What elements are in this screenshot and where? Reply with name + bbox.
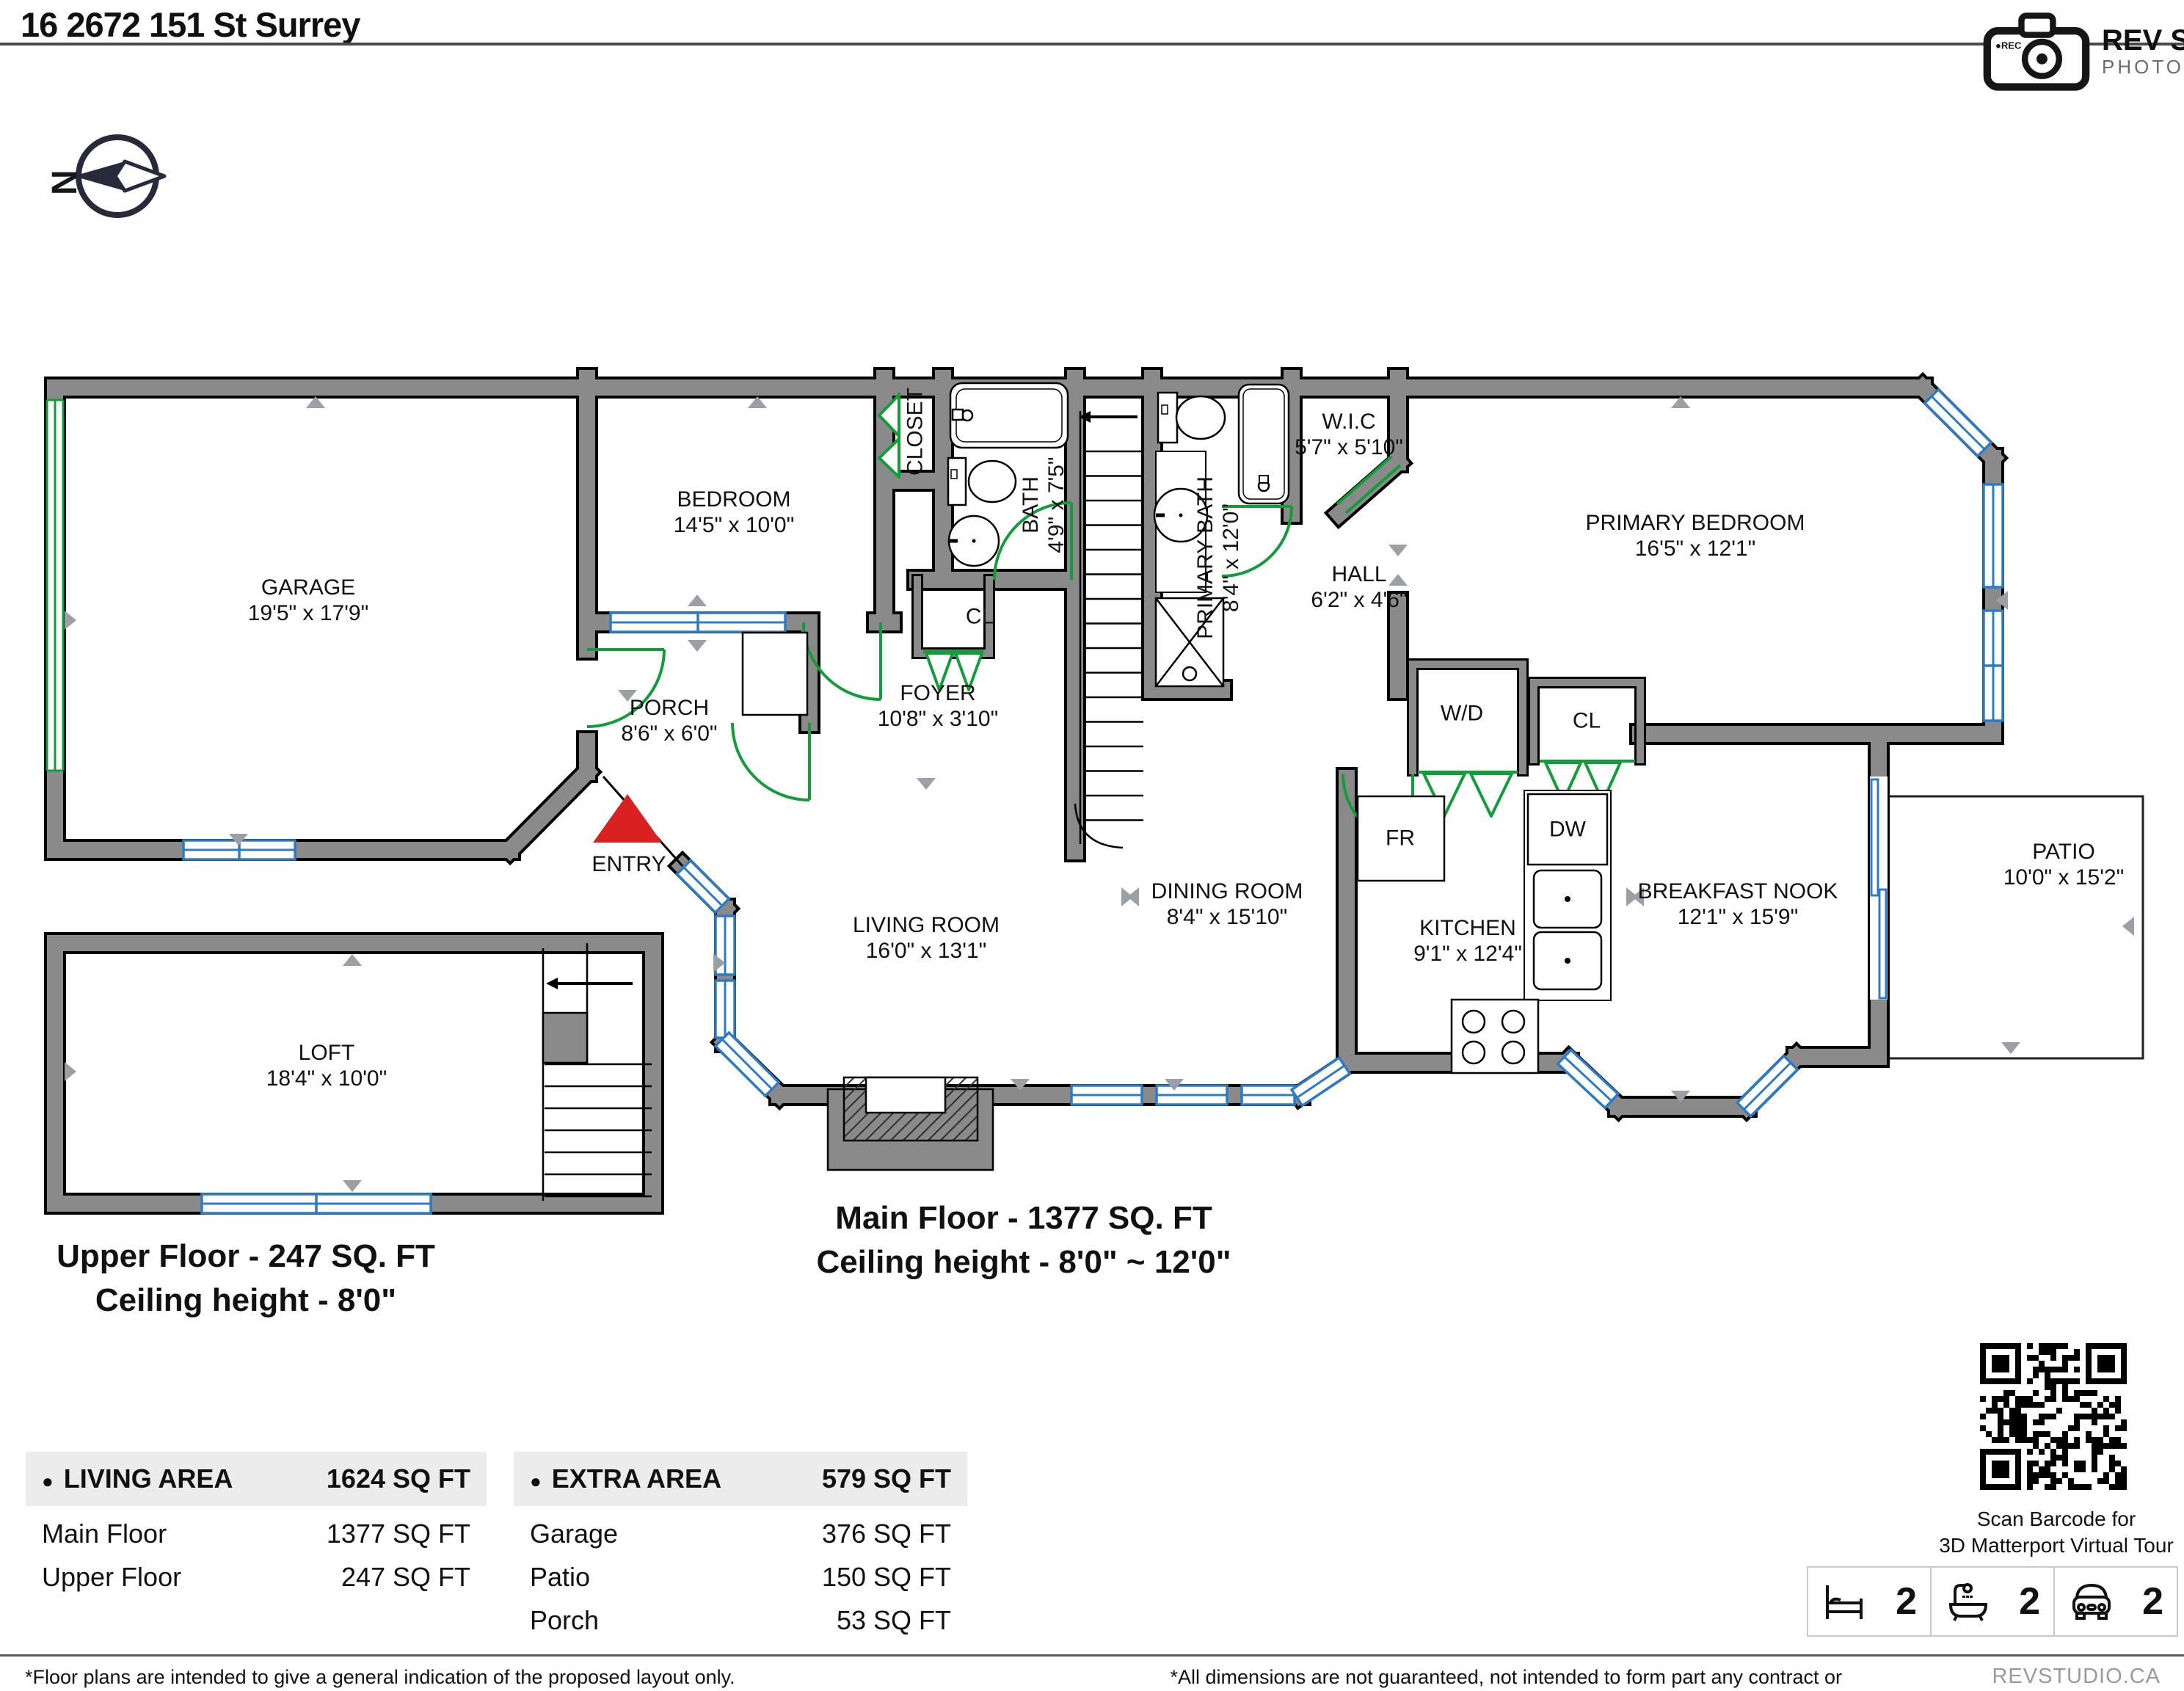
bed-icon [1821, 1578, 1868, 1625]
qr-caption: Scan Barcode for3D Matterport Virtual To… [1939, 1506, 2174, 1559]
property-stats: 2 2 2 [1807, 1566, 2178, 1637]
upper-floor-headline-line2: Ceiling height - 8'0" [95, 1282, 396, 1319]
room-label-cl-foyer: CL [966, 604, 994, 630]
upper-floor-headline-line1: Upper Floor - 247 SQ. FT [57, 1238, 435, 1275]
logo-sub: PHOTOGRAPHY [2102, 56, 2184, 78]
svg-text:N: N [45, 170, 84, 195]
table-row: Patio150 SQ FT [514, 1549, 967, 1593]
table-row: Upper Floor247 SQ FT [26, 1549, 487, 1593]
room-label-primary-bedroom: PRIMARY BEDROOM16'5" x 12'1" [1586, 510, 1805, 561]
room-label-porch: PORCH8'6" x 6'0" [621, 695, 717, 746]
extra-area-table: ●EXTRA AREA 579 SQ FT Garage376 SQ FT Pa… [514, 1452, 967, 1636]
page-title: 16 2672 151 St Surrey [21, 4, 360, 45]
room-label-wd: W/D [1441, 701, 1483, 727]
footer-site: REVSTUDIO.CA [1992, 1665, 2161, 1689]
room-label-loft: LOFT18'4" x 10'0" [266, 1040, 387, 1091]
room-label-bedroom: BEDROOM14'5" x 10'0" [674, 487, 795, 538]
bullet-icon: ● [42, 1470, 54, 1492]
footer-disclaimer-center: *All dimensions are not guaranteed, not … [1171, 1666, 1846, 1691]
table-row: Main Floor1377 SQ FT [26, 1506, 487, 1549]
table-row: Porch53 SQ FT [514, 1593, 967, 1636]
svg-text:●REC: ●REC [1995, 40, 2022, 51]
room-label-living: LIVING ROOM16'0" x 13'1" [853, 912, 1000, 964]
camera-icon: ●REC [1981, 10, 2092, 92]
fixture-label-dishwasher: DW [1549, 817, 1586, 843]
main-floor-headline-line1: Main Floor - 1377 SQ. FT [835, 1200, 1212, 1237]
fixture-label-fridge: FR [1386, 826, 1415, 851]
footer-divider [0, 1654, 2184, 1657]
room-label-garage: GARAGE19'5" x 17'9" [248, 575, 369, 626]
living-area-table: ●LIVING AREA 1624 SQ FT Main Floor1377 S… [26, 1452, 487, 1593]
stat-bedrooms: 2 [1808, 1568, 1932, 1635]
room-label-dining: DINING ROOM8'4" x 15'10" [1151, 879, 1303, 930]
room-label-nook: BREAKFAST NOOK12'1" x 15'9" [1638, 879, 1838, 930]
bath-icon [1945, 1578, 1992, 1625]
garage-count: 2 [2142, 1579, 2163, 1623]
entry-label: ENTRY [591, 852, 666, 877]
room-label-cl-hall: CL [1573, 708, 1601, 734]
logo-name: REV STUDIO [2102, 25, 2184, 56]
header-divider [0, 43, 2184, 46]
extra-area-total: 579 SQ FT [822, 1463, 951, 1494]
room-label-hall: HALL6'2" x 4'6" [1311, 561, 1407, 613]
living-area-total: 1624 SQ FT [327, 1463, 470, 1494]
bullet-icon: ● [530, 1470, 542, 1492]
stat-bathrooms: 2 [1932, 1568, 2055, 1635]
floorplan-drawing: N [0, 0, 2184, 1691]
room-label-foyer: FOYER10'8" x 3'10" [878, 680, 999, 732]
stat-garage: 2 [2055, 1568, 2177, 1635]
room-label-patio: PATIO10'0" x 15'2" [2003, 839, 2125, 890]
studio-logo: ●REC REV STUDIO PHOTOGRAPHY [1981, 10, 2184, 92]
table-row: Garage376 SQ FT [514, 1506, 967, 1549]
room-label-bath: BATH4'9" x 7'5" [1018, 457, 1069, 553]
room-label-closet: CLOSET [903, 388, 928, 476]
room-label-primary-bath: PRIMARY BATH8'4" x 12'0" [1193, 476, 1244, 639]
living-area-header: ●LIVING AREA 1624 SQ FT [26, 1452, 487, 1506]
floorplan-sheet: 16 2672 151 St Surrey ●REC REV STUDIO PH… [0, 0, 2184, 1691]
room-label-wic: W.I.C5'7" x 5'10" [1295, 409, 1403, 460]
compass-icon: N [45, 137, 164, 215]
footer-disclaimer-left: *Floor plans are intended to give a gene… [25, 1666, 735, 1689]
extra-area-header: ●EXTRA AREA 579 SQ FT [514, 1452, 967, 1506]
car-icon [2068, 1578, 2115, 1625]
qr-code [1980, 1343, 2133, 1499]
bedroom-count: 2 [1896, 1579, 1917, 1623]
bathroom-count: 2 [2019, 1579, 2040, 1623]
room-label-kitchen: KITCHEN9'1" x 12'4" [1413, 915, 1522, 967]
main-floor-headline-line2: Ceiling height - 8'0" ~ 12'0" [816, 1244, 1231, 1281]
